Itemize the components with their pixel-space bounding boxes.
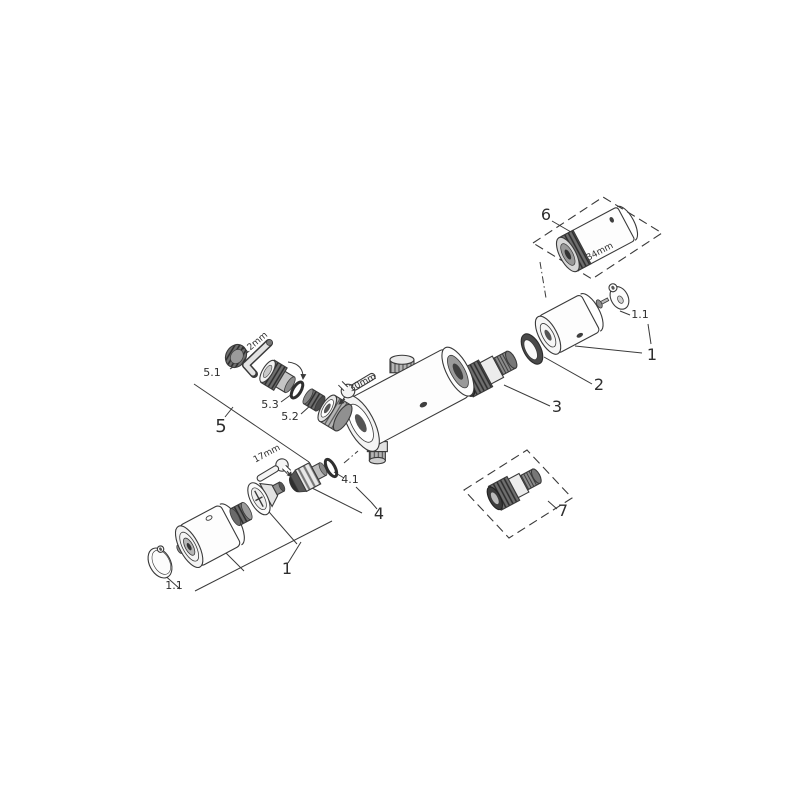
leader-6 [552, 221, 571, 232]
bracket-1-right [575, 346, 642, 353]
mixer-body [327, 326, 490, 473]
leader-3 [504, 385, 550, 406]
label-part-5-3: 5.3 [261, 398, 279, 411]
label-part-5-2: 5.2 [281, 410, 299, 423]
axis-link-frame6 [540, 262, 546, 298]
parts-diagram-page: 634mm1.11235.112mm5.35.2530mm17mm4.141.1… [0, 0, 800, 800]
cap-part-1-1-right [604, 280, 632, 313]
label-part-3: 3 [552, 397, 562, 416]
exploded-view-diagram: 634mm1.11235.112mm5.35.2530mm17mm4.141.1… [0, 0, 800, 800]
label-part-5-1: 5.1 [203, 366, 221, 379]
socket-tool-34mm [552, 203, 642, 275]
bracket-1-1-right-drop [648, 324, 651, 344]
label-part-1-1-right: 1.1 [631, 308, 649, 321]
leader-1-1-right [620, 311, 630, 315]
label-part-5: 5 [215, 416, 226, 437]
label-part-6: 6 [541, 205, 551, 224]
axis-link-4 [344, 451, 358, 463]
spare-cartridge-part-7 [484, 463, 546, 513]
bracket-4-a [356, 487, 371, 502]
knurled-nut-left [228, 501, 254, 527]
label-part-1-1-left: 1.1 [165, 579, 183, 592]
label-part-1-left: 1 [282, 559, 292, 578]
label-part-4-1: 4.1 [341, 473, 359, 486]
label-part-7: 7 [558, 501, 568, 520]
label-part-4: 4 [374, 504, 384, 523]
parts [143, 203, 642, 582]
label-part-1-right: 1 [647, 345, 657, 364]
label-part-2: 2 [594, 375, 604, 394]
leader-2 [544, 357, 592, 384]
bracket-4-b [312, 488, 362, 513]
cap-part-1-1-left [143, 544, 177, 582]
